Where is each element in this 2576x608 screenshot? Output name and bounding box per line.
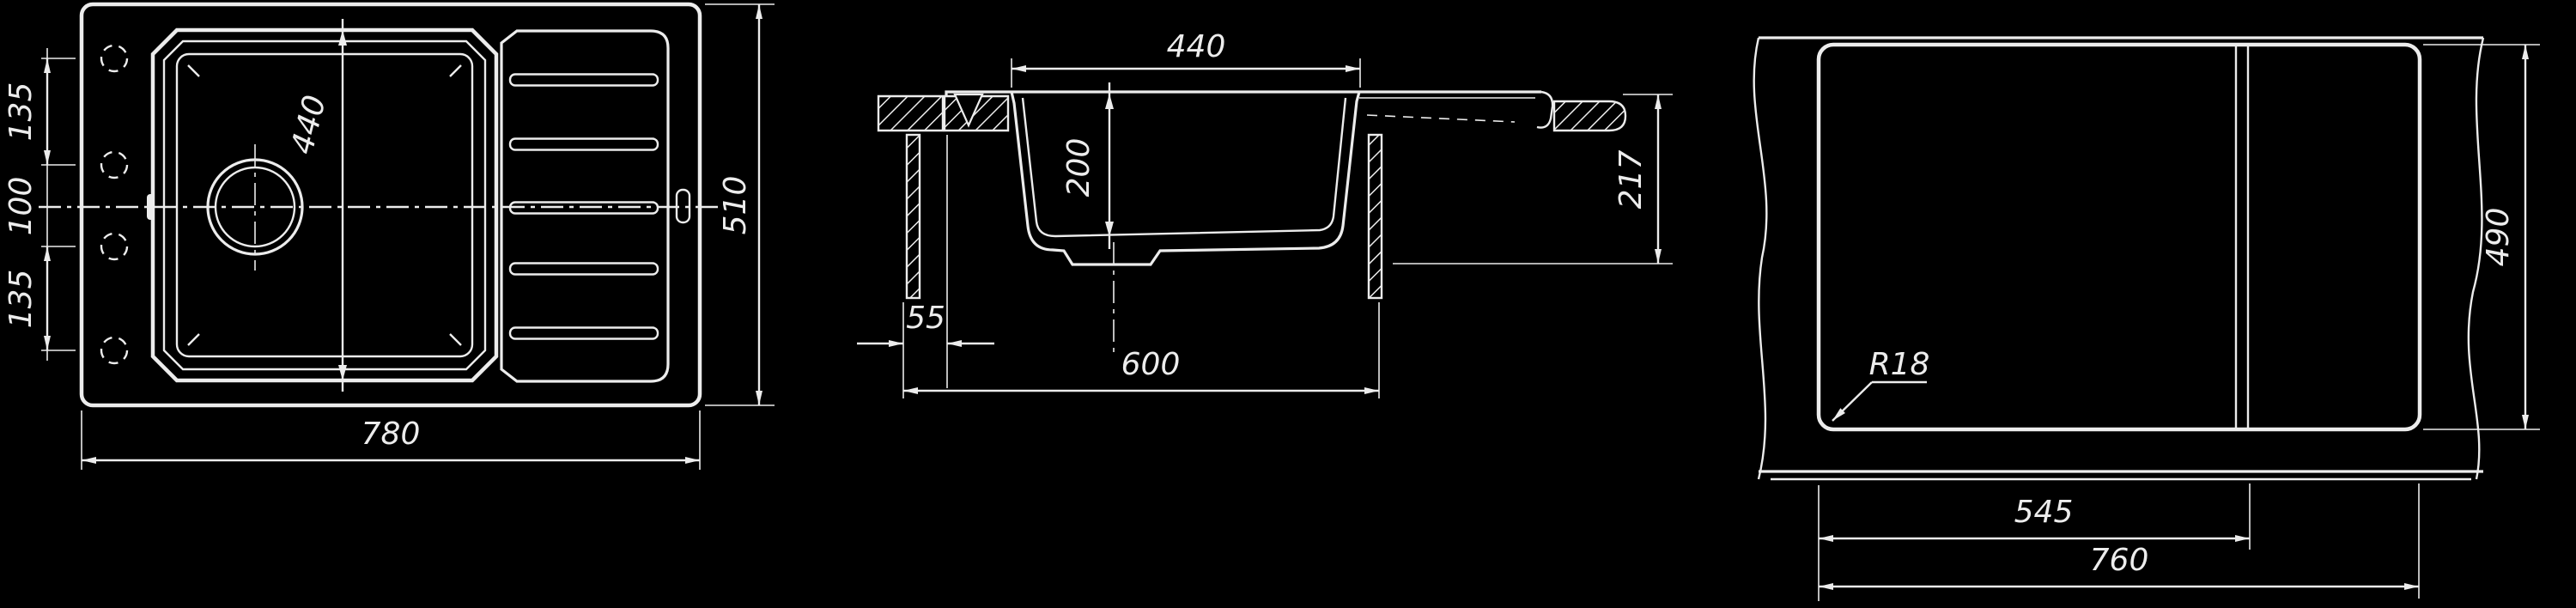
countertop-right-section xyxy=(1554,101,1625,131)
dim-label-section-total-height: 217 xyxy=(1613,150,1649,210)
dim-label-spacing-bottom: 135 xyxy=(3,270,39,329)
cabinet-panel-left xyxy=(907,135,920,298)
dim-label-cutout-height: 490 xyxy=(2481,208,2516,267)
cutout-view: R18 545 760 490 xyxy=(1754,38,2540,601)
dim-overall-width: 780 xyxy=(82,410,700,470)
countertop-slab xyxy=(1754,38,2483,479)
cutout-partition-lines xyxy=(2236,45,2248,429)
drainboard-lip xyxy=(1537,92,1552,128)
dim-label-partition-offset: 545 xyxy=(2014,495,2074,530)
faucet-holes xyxy=(101,46,127,363)
dim-label-section-cabinet-width: 600 xyxy=(1121,347,1181,382)
dim-section-bowl-depth: 200 xyxy=(1061,82,1114,249)
dim-hole-spacings: 135 100 135 xyxy=(3,48,76,361)
sink-section-profile xyxy=(946,92,1552,352)
bowl-rim xyxy=(147,30,496,380)
dim-section-side-offset: 55 xyxy=(857,135,994,398)
cabinet-panel-right xyxy=(1369,135,1382,298)
top-view: 440 510 780 135 100 135 xyxy=(3,4,775,470)
dim-label-section-side-offset: 55 xyxy=(906,301,945,336)
break-line-left xyxy=(1754,38,1767,479)
dim-label-section-bowl-depth: 200 xyxy=(1061,138,1097,198)
dim-label-corner-radius: R18 xyxy=(1869,347,1930,382)
rim-mount-tab xyxy=(147,194,155,220)
dim-label-cutout-width: 760 xyxy=(2090,543,2149,578)
dim-label-spacing-top: 135 xyxy=(3,82,39,142)
dim-label-spacing-middle: 100 xyxy=(3,177,39,236)
drawing-canvas: 440 510 780 135 100 135 xyxy=(0,0,2576,608)
dim-label-bowl-length: 440 xyxy=(285,92,333,158)
countertop-left-section xyxy=(878,96,943,131)
dim-label-overall-width: 780 xyxy=(361,416,421,452)
dim-cutout-width: 760 xyxy=(1819,483,2419,599)
dim-overall-depth: 510 xyxy=(705,4,775,405)
section-view: 440 200 217 55 600 xyxy=(857,29,1673,398)
dim-cutout-height: 490 xyxy=(2423,45,2540,429)
dim-label-overall-depth: 510 xyxy=(718,176,753,235)
sink-outer-outline xyxy=(82,4,700,405)
dim-section-bowl-width: 440 xyxy=(1012,29,1360,88)
callout-corner-radius: R18 xyxy=(1832,347,1929,421)
sink-technical-drawing: 440 510 780 135 100 135 xyxy=(0,0,2576,608)
dim-cutout-partition-offset: 545 xyxy=(1819,483,2250,601)
dim-section-cabinet-width: 600 xyxy=(903,302,1379,398)
dim-section-total-height: 217 xyxy=(1393,94,1673,264)
dim-label-section-bowl-width: 440 xyxy=(1167,29,1226,64)
hidden-underside-line xyxy=(1367,115,1515,122)
